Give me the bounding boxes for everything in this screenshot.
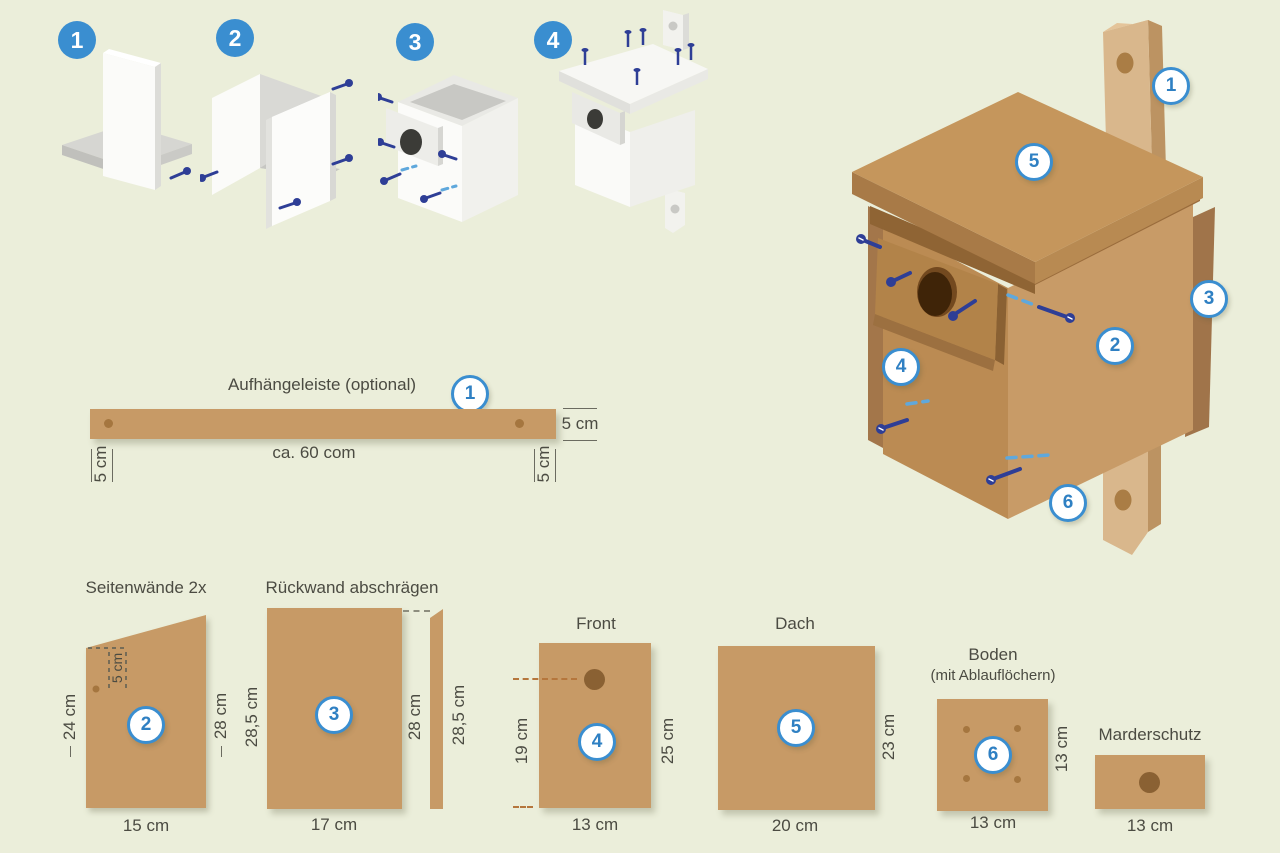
back-panel [103,49,161,190]
entrance-hole [584,669,605,690]
front-bottom-dim: 13 cm [535,815,655,835]
floor-badge: 6 [974,736,1012,774]
strip-length-label: ca. 60 com [174,443,454,463]
assembly-badge-side: 2 [1096,327,1134,365]
back-bottom-dim: 17 cm [274,815,394,835]
front-badge: 4 [578,723,616,761]
floor-panel-title: Boden [903,645,1083,665]
dimension-tick [555,449,556,482]
side-bottom-dim: 15 cm [86,816,206,836]
step-3-illustration [378,40,533,225]
strip-hole [515,419,524,428]
entrance-hole [400,129,422,155]
strip-height-label: 5 cm [560,414,600,434]
dimension-tick [563,408,597,409]
guard-panel-title: Marderschutz [1070,725,1230,745]
back-badge: 3 [315,696,353,734]
back-left-dim: 28,5 cm [242,667,262,767]
back-right-dim: 28,5 cm [449,665,469,765]
hanging-strip-title: Aufhängeleiste (optional) [162,375,482,395]
roof-right-dim: 23 cm [879,687,899,787]
dimension-tick [221,746,222,757]
strip-left-offset-label: 5 cm [91,414,111,514]
assembly-badge-strip: 1 [1152,67,1190,105]
bevel-dash [403,610,430,612]
drain-hole [1014,725,1021,732]
step-4-illustration [528,2,728,242]
back-panel-edge-view [430,609,443,809]
side-badge: 2 [127,706,165,744]
bottom-dash [513,806,533,808]
drain-hole [1014,776,1021,783]
roof-bottom-dim: 20 cm [735,816,855,836]
front-right-dim: 25 cm [658,691,678,791]
drain-hole [963,726,970,733]
side-hole-offset-label: 5 cm [109,638,125,698]
screw-icon [171,167,191,178]
hanging-strip-board [90,409,556,439]
dimension-tick [70,746,71,757]
back-panel-title: Rückwand abschrägen [242,578,462,598]
floor-panel-subtitle: (mit Ablauflöchern) [903,667,1083,684]
drain-hole [963,775,970,782]
roof-badge: 5 [777,709,815,747]
assembly-badge-floor: 6 [1049,484,1087,522]
side-panel-title: Seitenwände 2x [46,578,246,598]
dimension-tick [112,449,113,482]
entrance-hole [1139,772,1160,793]
roof-panel-title: Dach [735,614,855,634]
dimension-tick [563,440,597,441]
entrance-hole [587,109,603,129]
step-1-illustration [55,45,205,205]
step-2-illustration [200,40,365,235]
assembly-badge-roof: 5 [1015,143,1053,181]
birdhouse-building-instructions-diagram: 1 2 3 4 [0,0,1280,853]
floor-right-dim: 13 cm [1052,699,1072,799]
back-mid-dim: 28 cm [405,667,425,767]
strip-hole [1115,490,1132,511]
guard-bottom-dim: 13 cm [1090,816,1210,836]
hanging-strip-badge: 1 [451,375,489,413]
strip-hole [1117,53,1134,74]
assembly-badge-front: 4 [882,348,920,386]
strip-right-offset-label: 5 cm [534,414,554,514]
hole-height-dash [513,678,577,680]
floor-bottom-dim: 13 cm [933,813,1053,833]
pilot-hole [93,686,100,693]
assembly-badge-back: 3 [1190,280,1228,318]
front-left-dim: 19 cm [512,691,532,791]
front-panel-title: Front [536,614,656,634]
